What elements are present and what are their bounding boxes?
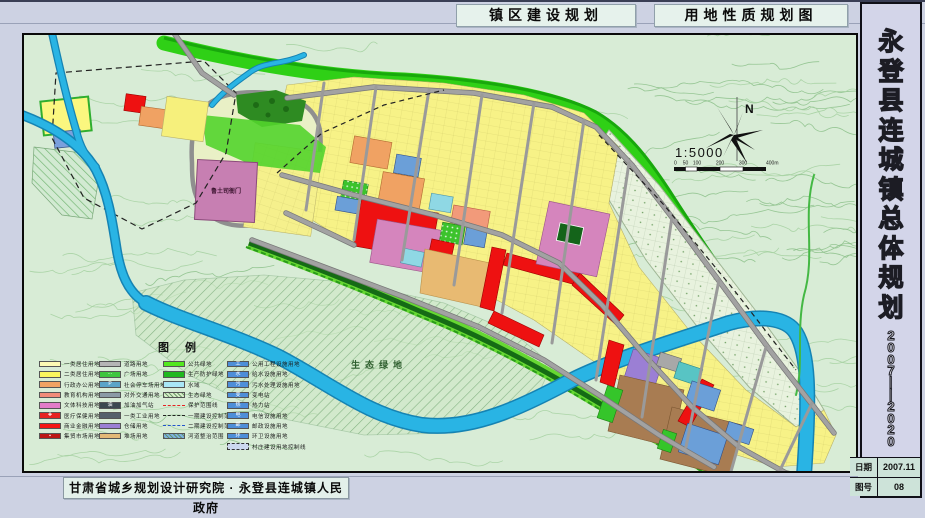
- legend-swatch-line: [163, 405, 185, 406]
- legend-item-label: 商业金融用地: [64, 422, 100, 430]
- plan-title-char: 永: [862, 28, 920, 58]
- title-left-text: 镇区建设规划: [489, 7, 603, 23]
- legend-item-label: 集贸市场用地: [64, 432, 100, 440]
- sheet-top-edge: [0, 0, 925, 2]
- legend-swatch-solid: 油: [99, 402, 121, 409]
- legend-item: ▪集贸市场用地: [39, 431, 100, 441]
- legend-swatch-dashedbox: [227, 443, 249, 450]
- plan-title-char: 连: [862, 117, 920, 147]
- scale-tick: 0: [674, 161, 677, 167]
- plan-title-char: 镇: [862, 176, 920, 206]
- scale-tick: 50: [683, 161, 689, 167]
- title-block-sidebar: 永登县连城镇总体规划 2007——2020 日期 2007.11 图号 08: [860, 2, 922, 498]
- legend-item: 邮邮政设施用地: [227, 421, 306, 431]
- legend-swatch-solid: 水: [227, 371, 249, 378]
- legend-item-label: 公用工程设施用地: [252, 360, 300, 368]
- legend-item: 油加油加气站: [99, 400, 166, 410]
- legend-item: ✚医疗保健用地: [39, 410, 100, 420]
- legend-swatch-solid: [39, 392, 61, 399]
- legend-item-label: 河道整治范围: [188, 432, 224, 440]
- plan-title-char: 体: [862, 235, 920, 265]
- plan-period-char: 0: [862, 436, 920, 448]
- west-residential2: [161, 96, 208, 141]
- scale-tick: 100: [693, 161, 702, 167]
- legend-item: ⋯广场用地: [99, 369, 166, 379]
- legend-swatch-solid: [99, 412, 121, 419]
- legend-item: 商业金融用地: [39, 421, 100, 431]
- legend-swatch-solid: ✚: [39, 412, 61, 419]
- date-value: 2007.11: [878, 458, 920, 477]
- legend-swatch-solid: 邮: [227, 423, 249, 430]
- legend-item-label: 邮政设施用地: [252, 422, 288, 430]
- attribution-box: 甘肃省城乡规划设计研究院 · 永登县连城镇人民政府: [63, 477, 349, 499]
- legend-item: 二期建设控制范围: [163, 421, 236, 431]
- legend-item: 公共绿地: [163, 359, 236, 369]
- legend-item-label: 一类居住用地: [64, 360, 100, 368]
- legend-item: 污污水处理设施用地: [227, 380, 306, 390]
- legend-item-label: 对外交通用地: [124, 391, 160, 399]
- legend-item-label: 加油加气站: [124, 401, 154, 409]
- legend-item-label: 变电站: [252, 391, 270, 399]
- legend-item: 水域: [163, 380, 236, 390]
- legend-item-label: 电信设施用地: [252, 412, 288, 420]
- sheet-number-value: 08: [878, 478, 920, 497]
- legend-swatch-solid: [39, 381, 61, 388]
- palace-label: 鲁土司衙门: [211, 187, 241, 195]
- legend-item: 一类居住用地: [39, 359, 100, 369]
- legend-item-label: 环卫设施用地: [252, 432, 288, 440]
- legend-item: P社会停车场用地: [99, 380, 166, 390]
- legend-item-label: 堆场用地: [124, 432, 148, 440]
- legend-swatch-solid: ⋯: [99, 371, 121, 378]
- legend-swatch-solid: [163, 371, 185, 378]
- legend-swatch-solid: [39, 423, 61, 430]
- sheet-number-label: 图号: [850, 478, 878, 497]
- legend-item-label: 二类居住用地: [64, 370, 100, 378]
- plan-period-vertical: 2007——2020: [862, 330, 920, 448]
- legend-swatch-solid: P: [99, 381, 121, 388]
- legend-item: 堆场用地: [99, 431, 166, 441]
- legend-swatch-solid: [99, 433, 121, 440]
- legend-item-label: 村庄建设用地控制线: [252, 443, 306, 451]
- legend-swatch-solid: [39, 371, 61, 378]
- legend-item-label: 生态绿地: [188, 391, 212, 399]
- legend-item: 保护范围线: [163, 400, 236, 410]
- legend-swatch-solid: [39, 402, 61, 409]
- legend-item: 水给水设施用地: [227, 369, 306, 379]
- legend-item: 环环卫设施用地: [227, 431, 306, 441]
- legend-item: 村庄建设用地控制线: [227, 441, 306, 451]
- scale-tick: 300: [739, 161, 748, 167]
- scale-bar: [674, 167, 766, 171]
- legend-item-label: 社会停车场用地: [124, 381, 166, 389]
- legend-swatch-solid: [99, 423, 121, 430]
- legend-item: 仓储用地: [99, 421, 166, 431]
- legend-swatch-hatch: [163, 433, 185, 440]
- plan-title-char: 规: [862, 264, 920, 294]
- legend-title: 图例: [97, 339, 257, 355]
- legend-item-label: 广场用地: [124, 370, 148, 378]
- scale-text: 1:5000: [675, 145, 724, 160]
- north-label: N: [745, 102, 754, 116]
- legend-column: 公共绿地生产防护绿地水域生态绿地保护范围线一期建设控制范围二期建设控制范围河道整…: [163, 359, 236, 441]
- scale-tick: 400m: [766, 161, 779, 167]
- legend-item-label: 水域: [188, 381, 200, 389]
- title-right-text: 用地性质规划图: [685, 7, 818, 23]
- legend-item: 热热力站: [227, 400, 306, 410]
- cyan-block: [429, 193, 453, 213]
- legend-swatch-line: [163, 425, 185, 426]
- plan-title-char: 总: [862, 205, 920, 235]
- plan-title-char: 城: [862, 146, 920, 176]
- legend-swatch-solid: [99, 361, 121, 368]
- legend-item: 一类工业用地: [99, 410, 166, 420]
- legend-swatch-solid: 工: [227, 361, 249, 368]
- legend-swatch-line: [163, 415, 185, 416]
- legend-item: 行政办公用地: [39, 380, 100, 390]
- legend-item: 文体科技用地: [39, 400, 100, 410]
- plan-title-char: 登: [862, 58, 920, 88]
- legend-item-label: 道路用地: [124, 360, 148, 368]
- scale-tick: 200: [716, 161, 725, 167]
- legend-item-label: 行政办公用地: [64, 381, 100, 389]
- legend-item: 道路用地: [99, 359, 166, 369]
- title-construction-plan: 镇区建设规划: [456, 4, 636, 27]
- legend-swatch-solid: 电: [227, 412, 249, 419]
- legend-column: 一类居住用地二类居住用地行政办公用地教育机构用地文体科技用地✚医疗保健用地商业金…: [39, 359, 100, 441]
- legend-item: 变变电站: [227, 390, 306, 400]
- legend-item-label: 仓储用地: [124, 422, 148, 430]
- legend-swatch-solid: [163, 361, 185, 368]
- eco-green-label: 生态绿地: [351, 359, 407, 370]
- legend-column: 道路用地⋯广场用地P社会停车场用地对外交通用地油加油加气站一类工业用地仓储用地堆…: [99, 359, 166, 441]
- legend-swatch-solid: 热: [227, 402, 249, 409]
- legend-swatch-hatch: [163, 392, 185, 399]
- plan-title-vertical: 永登县连城镇总体规划: [862, 28, 920, 323]
- legend-item-label: 给水设施用地: [252, 370, 288, 378]
- date-row: 日期 2007.11: [850, 458, 920, 478]
- legend-swatch-solid: [163, 381, 185, 388]
- legend-swatch-solid: 污: [227, 381, 249, 388]
- legend-column: 工公用工程设施用地水给水设施用地污污水处理设施用地变变电站热热力站电电信设施用地…: [227, 359, 306, 452]
- legend-item-label: 热力站: [252, 401, 270, 409]
- attribution-text: 甘肃省城乡规划设计研究院 · 永登县连城镇人民政府: [69, 481, 343, 515]
- legend-item: 河道整治范围: [163, 431, 236, 441]
- sheet-info-table: 日期 2007.11 图号 08: [850, 457, 920, 496]
- legend-item-label: 生产防护绿地: [188, 370, 224, 378]
- legend-item: 生产防护绿地: [163, 369, 236, 379]
- legend-item: 电电信设施用地: [227, 410, 306, 420]
- map-frame: 鲁土司衙门: [22, 33, 858, 473]
- title-landuse-plan: 用地性质规划图: [654, 4, 848, 27]
- legend-item-label: 保护范围线: [188, 401, 218, 409]
- legend-item-label: 一类工业用地: [124, 412, 160, 420]
- plan-period-char: —: [885, 366, 897, 424]
- plan-title-char: 县: [862, 87, 920, 117]
- legend-item: 工公用工程设施用地: [227, 359, 306, 369]
- legend-item-label: 文体科技用地: [64, 401, 100, 409]
- date-label: 日期: [850, 458, 878, 477]
- legend-item-label: 污水处理设施用地: [252, 381, 300, 389]
- legend-swatch-solid: 变: [227, 392, 249, 399]
- legend-item: 一期建设控制范围: [163, 410, 236, 420]
- legend-item-label: 教育机构用地: [64, 391, 100, 399]
- legend-item: 教育机构用地: [39, 390, 100, 400]
- legend-item: 生态绿地: [163, 390, 236, 400]
- legend: 图例 一类居住用地二类居住用地行政办公用地教育机构用地文体科技用地✚医疗保健用地…: [37, 339, 323, 465]
- legend-swatch-solid: ▪: [39, 433, 61, 440]
- plan-title-char: 划: [862, 294, 920, 324]
- legend-swatch-solid: [99, 392, 121, 399]
- legend-item: 对外交通用地: [99, 390, 166, 400]
- sheet-number-row: 图号 08: [850, 478, 920, 497]
- legend-swatch-solid: [39, 361, 61, 368]
- planning-sheet: { "titles": { "left": "镇区建设规划", "right":…: [0, 0, 925, 500]
- legend-swatch-solid: 环: [227, 433, 249, 440]
- legend-item-label: 公共绿地: [188, 360, 212, 368]
- legend-item: 二类居住用地: [39, 369, 100, 379]
- legend-item-label: 医疗保健用地: [64, 412, 100, 420]
